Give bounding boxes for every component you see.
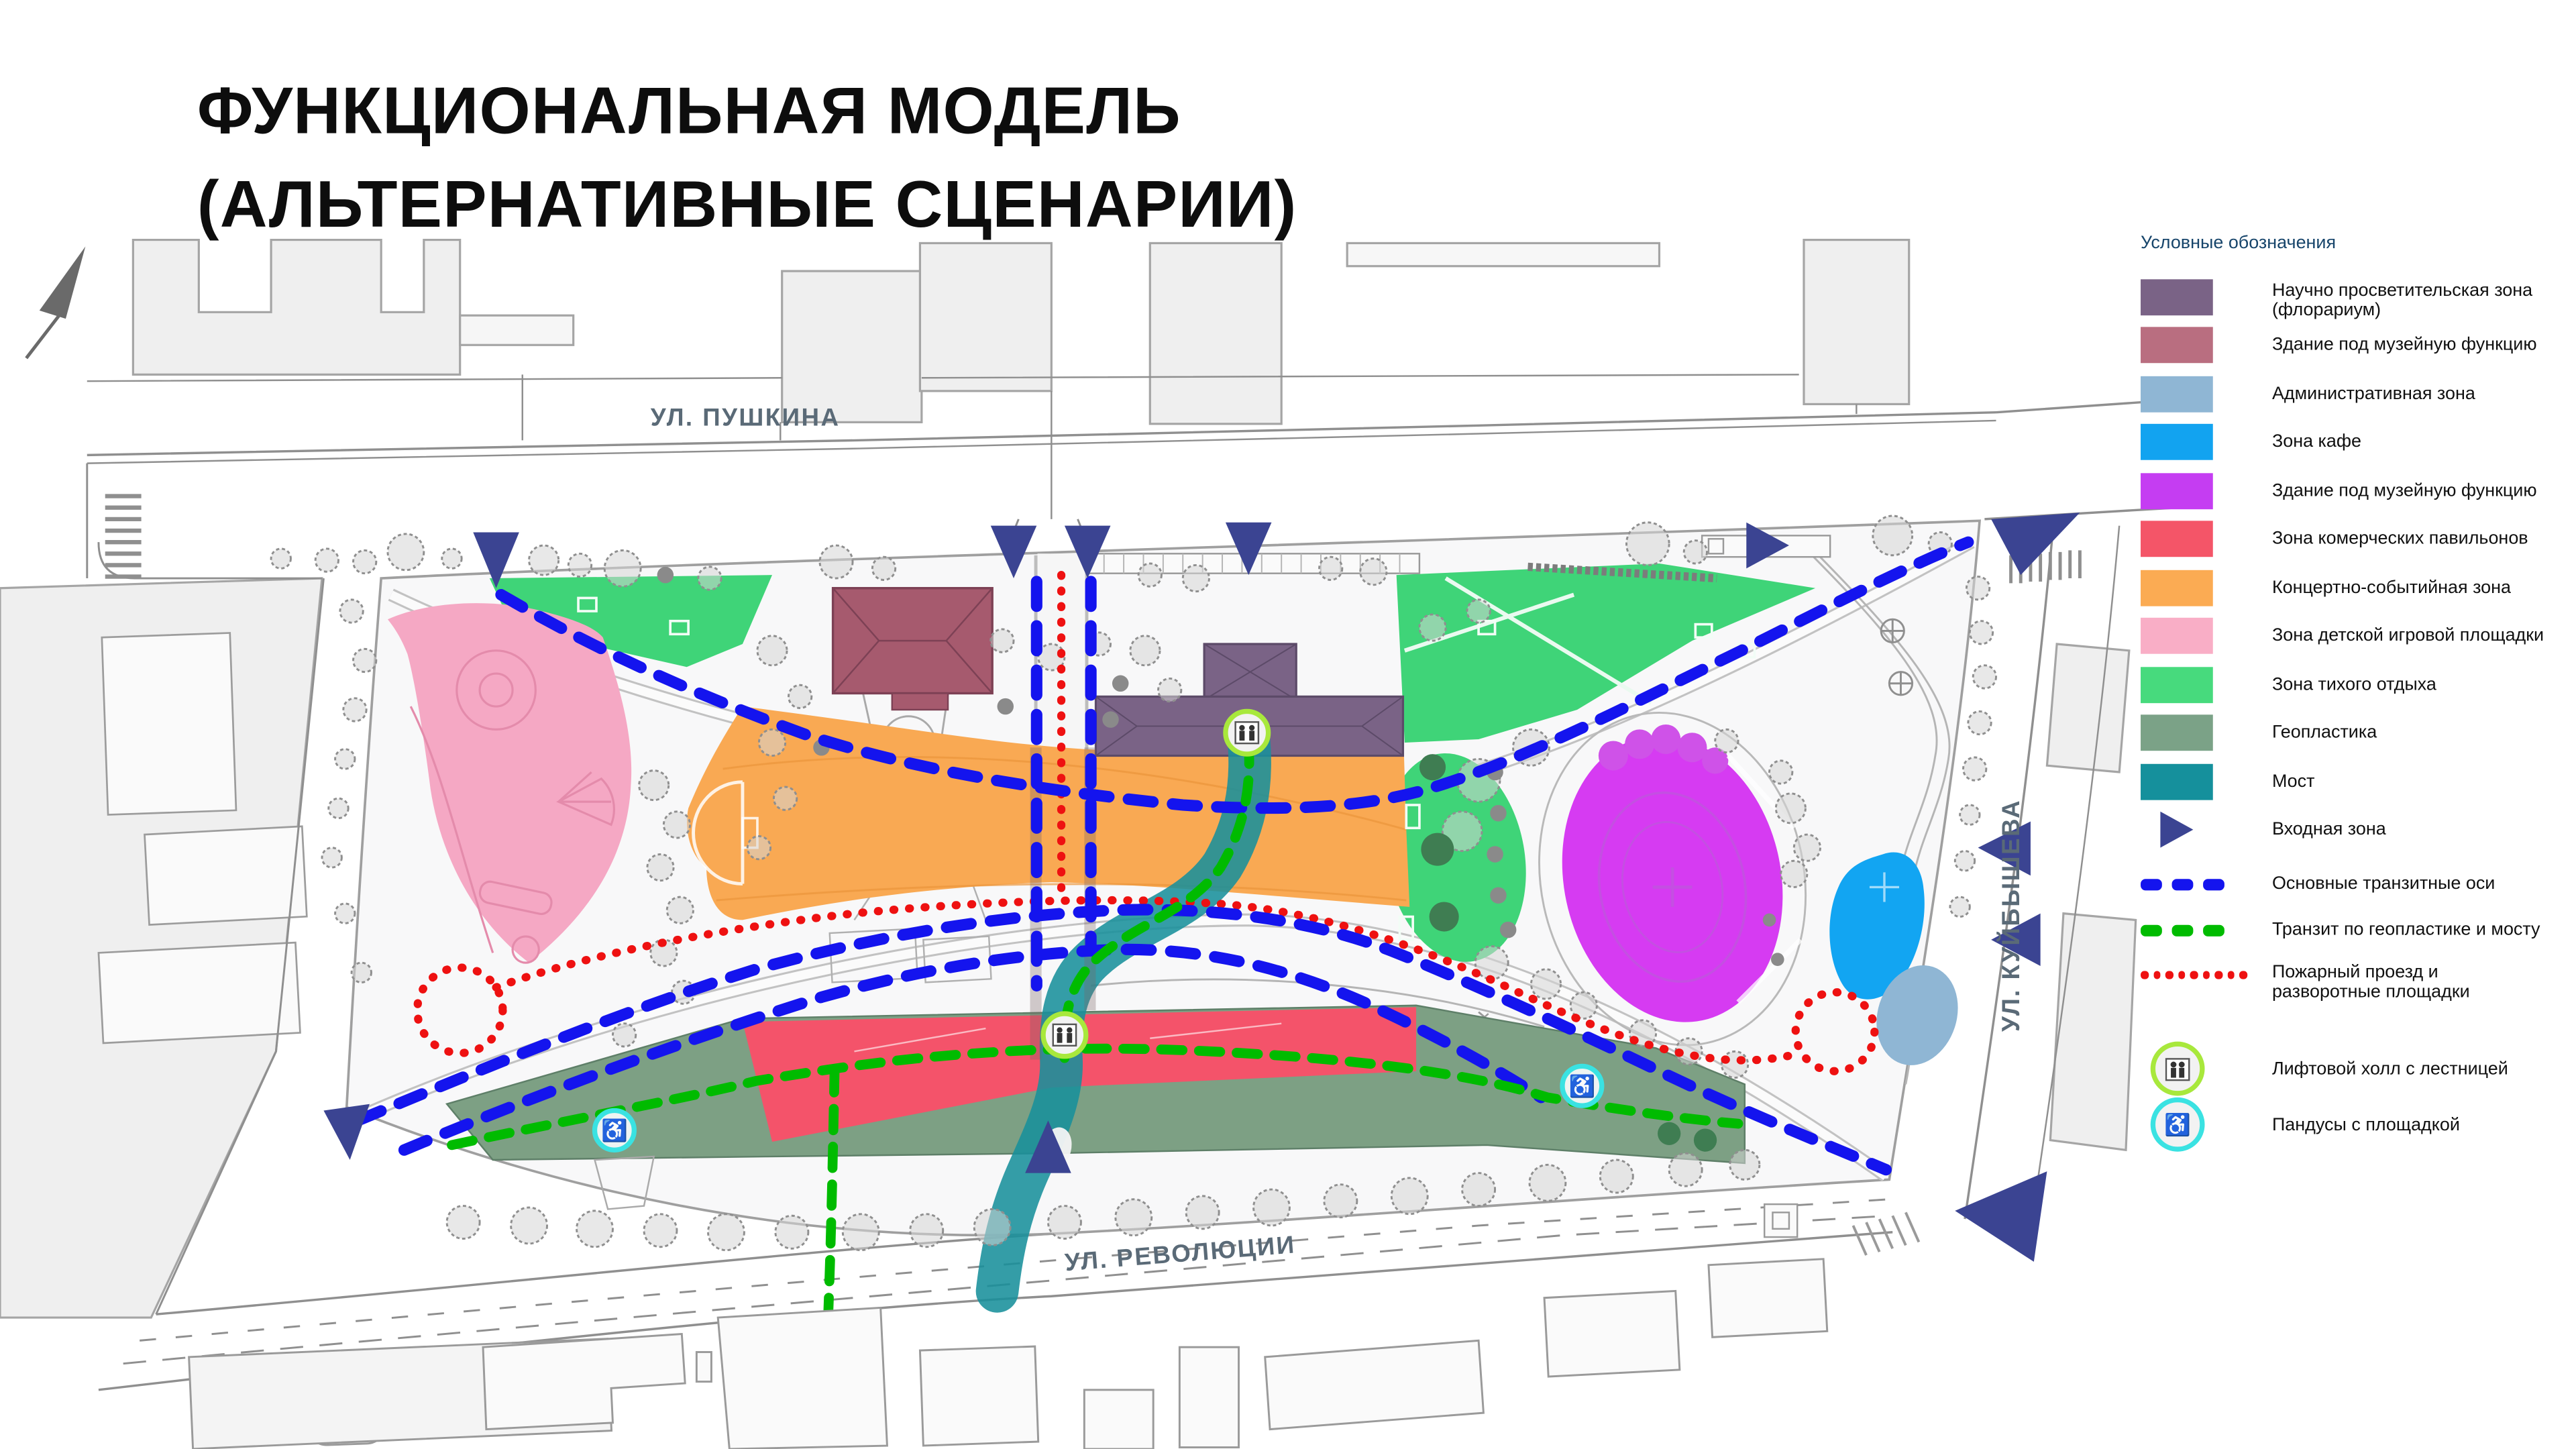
legend-item-fire-lane: Пожарный проезд и разворотные площадки (2141, 961, 2551, 1002)
building-block (460, 315, 574, 345)
building-block (1804, 240, 1909, 405)
swatch-museum-2 (2141, 473, 2213, 509)
street-label-kuibysheva: УЛ. КУЙБЫШЕВА (1998, 799, 2026, 1032)
swatch-cafe (2141, 424, 2213, 460)
legend-item-museum-1: Здание под музейную функцию (2141, 327, 2537, 363)
swatch-museum-1 (2141, 327, 2213, 363)
legend-item-green-transit: Транзит по геопластике и мосту (2141, 920, 2540, 939)
legend-item-geoplastics: Геопластика (2141, 714, 2377, 751)
swatch-bridge (2141, 764, 2213, 800)
legend-item-quiet: Зона тихого отдыха (2141, 667, 2436, 703)
legend-item-admin: Административная зона (2141, 376, 2475, 413)
legend-item-elevator: Лифтовой холл с лестницей (2141, 1042, 2508, 1096)
page-title-line1: ФУНКЦИОНАЛЬНАЯ МОДЕЛЬ (197, 66, 1297, 160)
building-block (2050, 914, 2135, 1150)
page-title-line2: (АЛЬТЕРНАТИВНЫЕ СЦЕНАРИИ) (197, 160, 1297, 254)
north-arrow-icon (26, 246, 85, 358)
svg-text:♿: ♿ (1569, 1074, 1596, 1098)
elevator-hall-icon (1226, 711, 1269, 754)
legend-item-museum-2: Здание под музейную функцию (2141, 473, 2537, 509)
ramp-icon: ♿ (1562, 1066, 1602, 1106)
ramp-icon: ♿ (2151, 1097, 2205, 1152)
swatch-geoplastics (2141, 714, 2213, 751)
building-block (920, 243, 1051, 390)
swatch-commercial (2141, 521, 2213, 557)
page: ♿ ♿ ФУНКЦИОНАЛЬНАЯ МОДЕЛЬ (АЛЬТЕРНАТИВНЫ… (0, 0, 2576, 1449)
building-block (1347, 243, 1659, 266)
page-title: ФУНКЦИОНАЛЬНАЯ МОДЕЛЬ (АЛЬТЕРНАТИВНЫЕ СЦ… (197, 66, 1297, 253)
building-block (133, 240, 460, 375)
legend-item-bridge: Мост (2141, 764, 2314, 800)
swatch-admin (2141, 376, 2213, 413)
elevator-hall-icon (1043, 1014, 1086, 1057)
legend-item-ramp: ♿ Пандусы с площадкой (2141, 1097, 2460, 1152)
legend-item-commercial: Зона комерческих павильонов (2141, 521, 2528, 557)
ramp-icon: ♿ (595, 1111, 635, 1150)
legend-item-cafe: Зона кафе (2141, 424, 2361, 460)
building-block (2047, 644, 2129, 772)
green-dash-icon (2141, 924, 2224, 936)
entrance-triangle (1991, 513, 2080, 575)
elevator-icon (2151, 1042, 2205, 1096)
swatch-playground (2141, 618, 2213, 654)
legend-item-transit-axes: Основные транзитные оси (2141, 874, 2495, 894)
blue-dash-icon (2141, 878, 2224, 890)
street-label-pushkina: УЛ. ПУШКИНА (651, 404, 841, 432)
legend-item-concert: Концертно-событийная зона (2141, 570, 2511, 606)
legend: Условные обозначения Научно просветитель… (2141, 233, 2575, 253)
legend-item-florarium: Научно просветительская зона (флорариум) (2141, 279, 2551, 320)
svg-text:♿: ♿ (601, 1118, 628, 1142)
legend-header: Условные обозначения (2141, 233, 2575, 253)
swatch-quiet (2141, 667, 2213, 703)
legend-item-playground: Зона детской игровой площадки (2141, 618, 2544, 654)
entrance-triangle-icon (2160, 812, 2193, 848)
building-block (1150, 243, 1281, 423)
legend-item-entrance: Входная зона (2141, 812, 2386, 848)
entrance-triangle (323, 1104, 370, 1160)
crosswalk-west (105, 496, 142, 577)
red-dots-icon (2141, 971, 2247, 978)
green-transit-drop (828, 1071, 835, 1321)
museum-building-1 (833, 588, 993, 710)
swatch-florarium (2141, 279, 2213, 315)
building-block (782, 271, 922, 422)
swatch-concert (2141, 570, 2213, 606)
